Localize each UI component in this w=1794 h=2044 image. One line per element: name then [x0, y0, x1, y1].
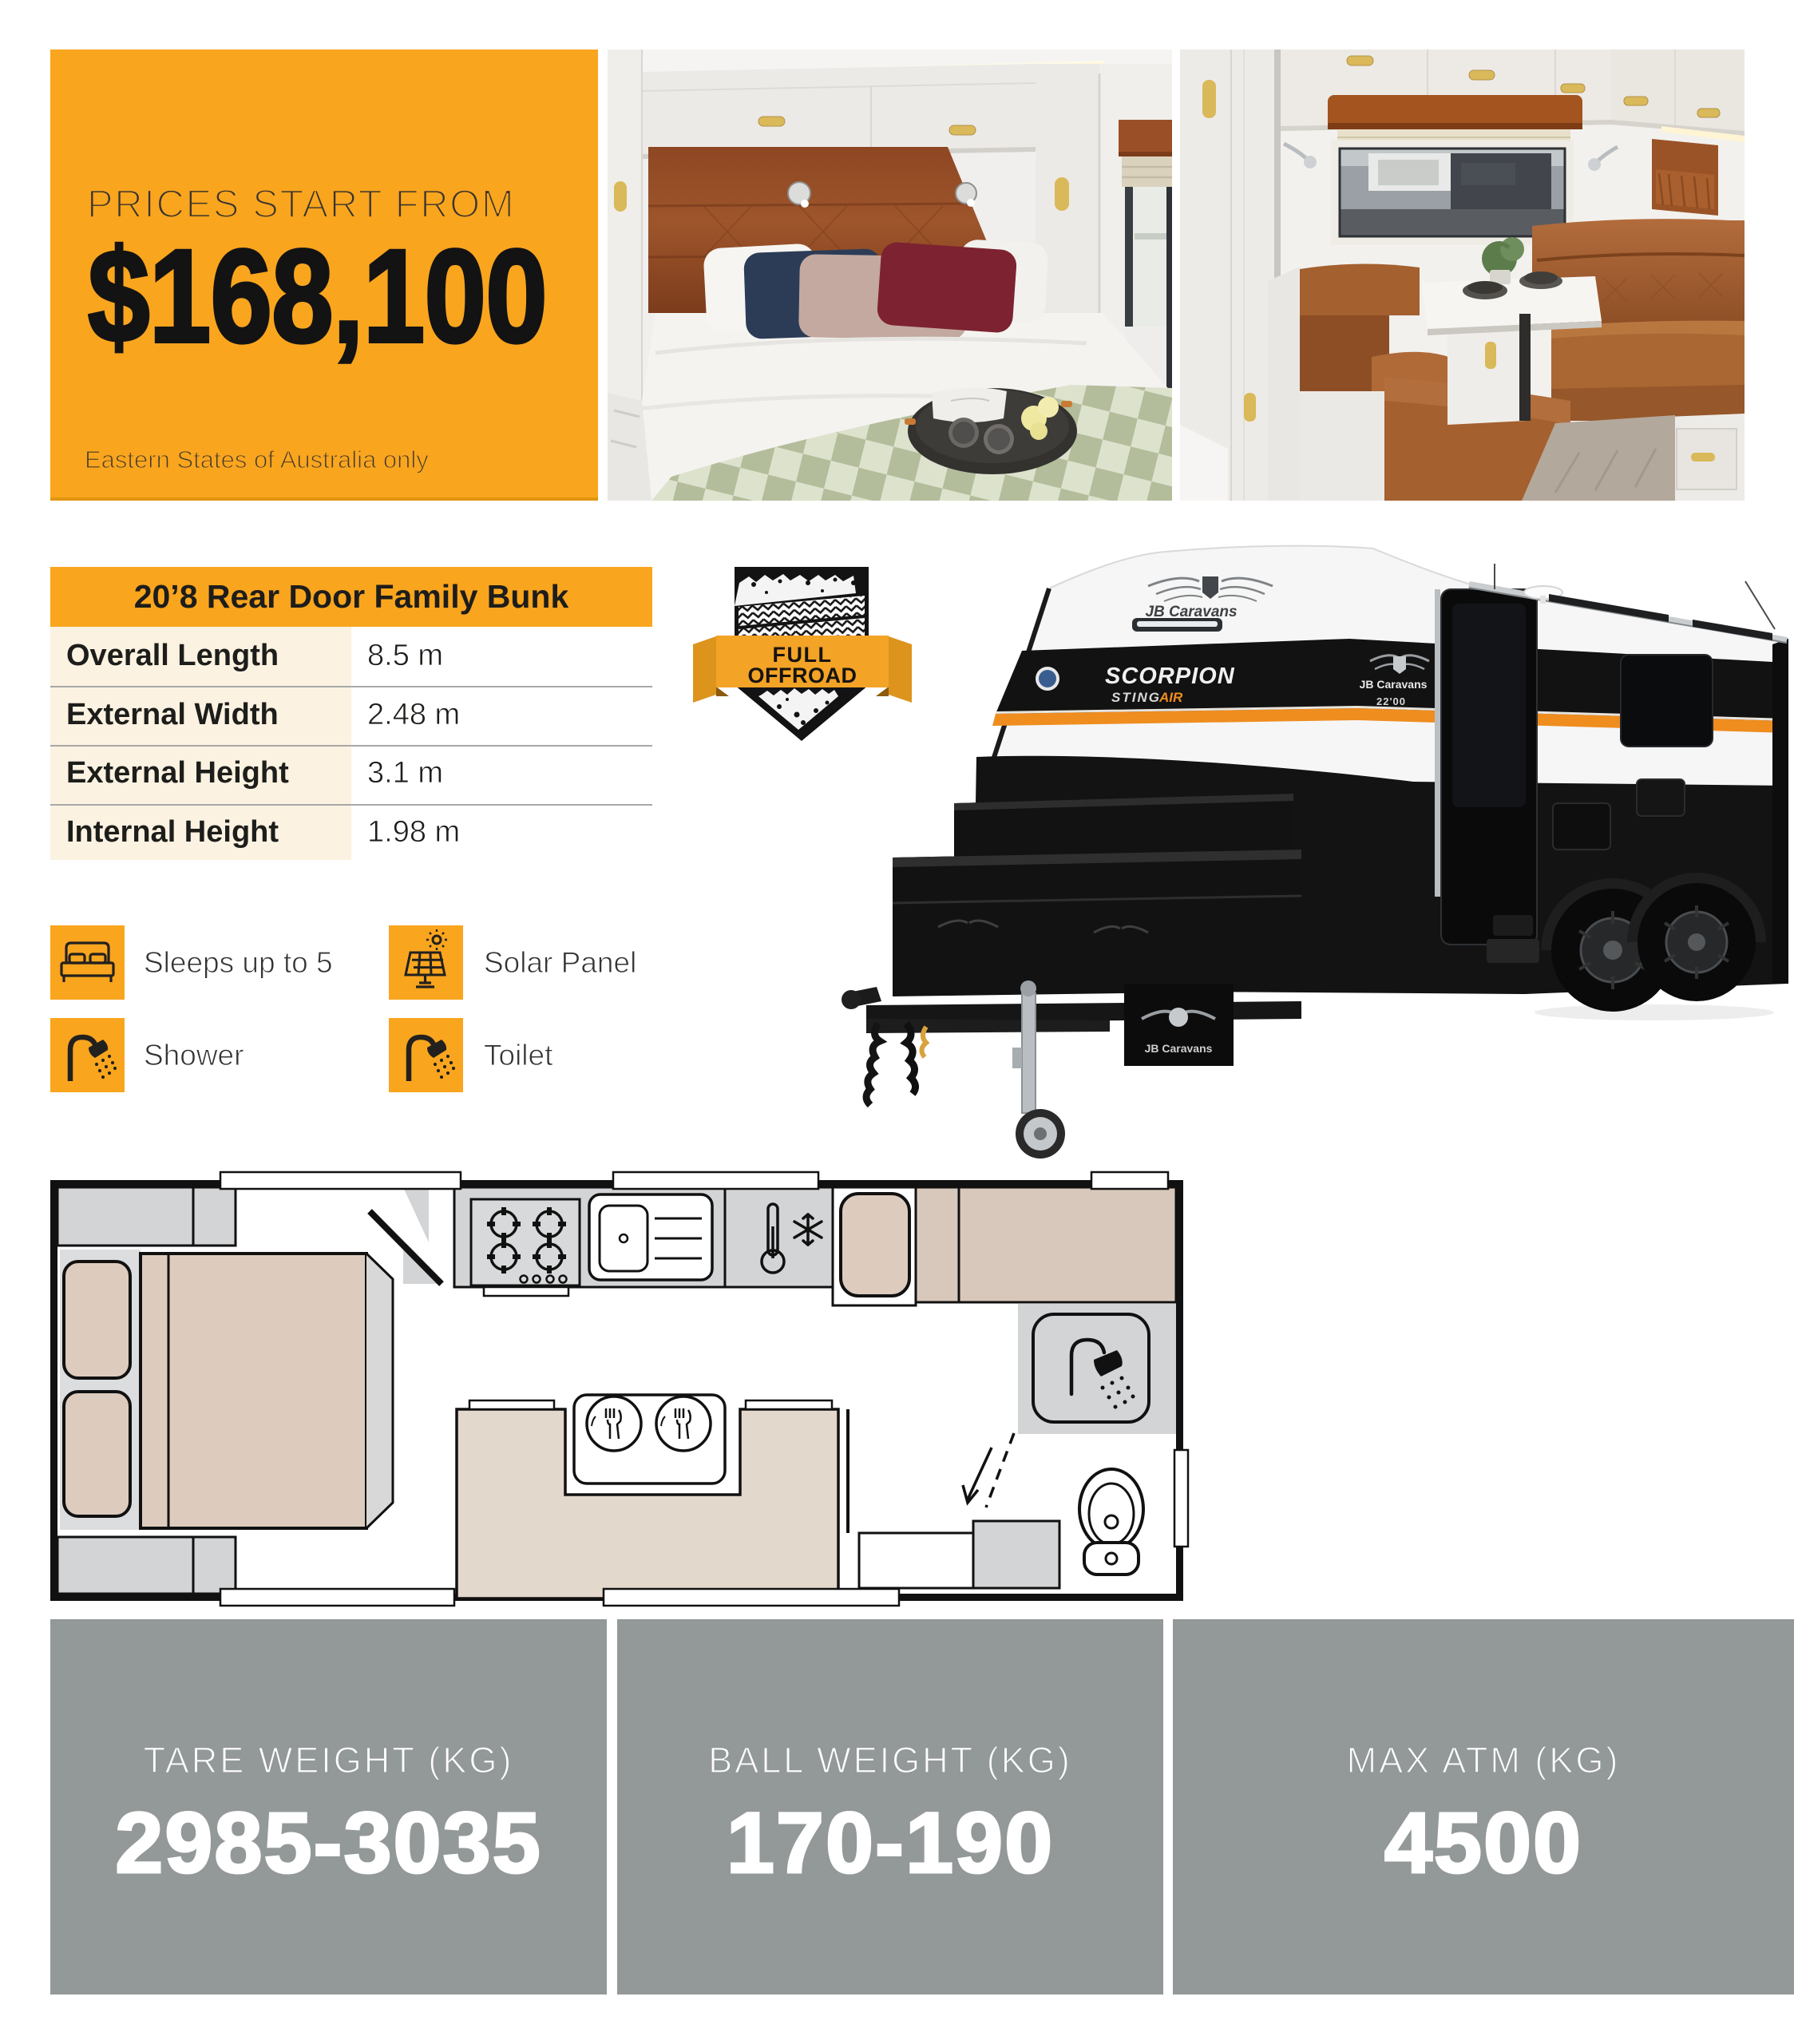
svg-text:JB Caravans: JB Caravans	[1145, 1042, 1213, 1055]
svg-text:JB Caravans: JB Caravans	[1145, 604, 1237, 620]
svg-text:JB Caravans: JB Caravans	[1360, 678, 1428, 691]
svg-text:22'00: 22'00	[1376, 695, 1406, 707]
svg-text:STING: STING	[1111, 690, 1161, 705]
svg-text:AIR: AIR	[1158, 690, 1183, 705]
svg-text:SCORPION: SCORPION	[1105, 664, 1235, 689]
